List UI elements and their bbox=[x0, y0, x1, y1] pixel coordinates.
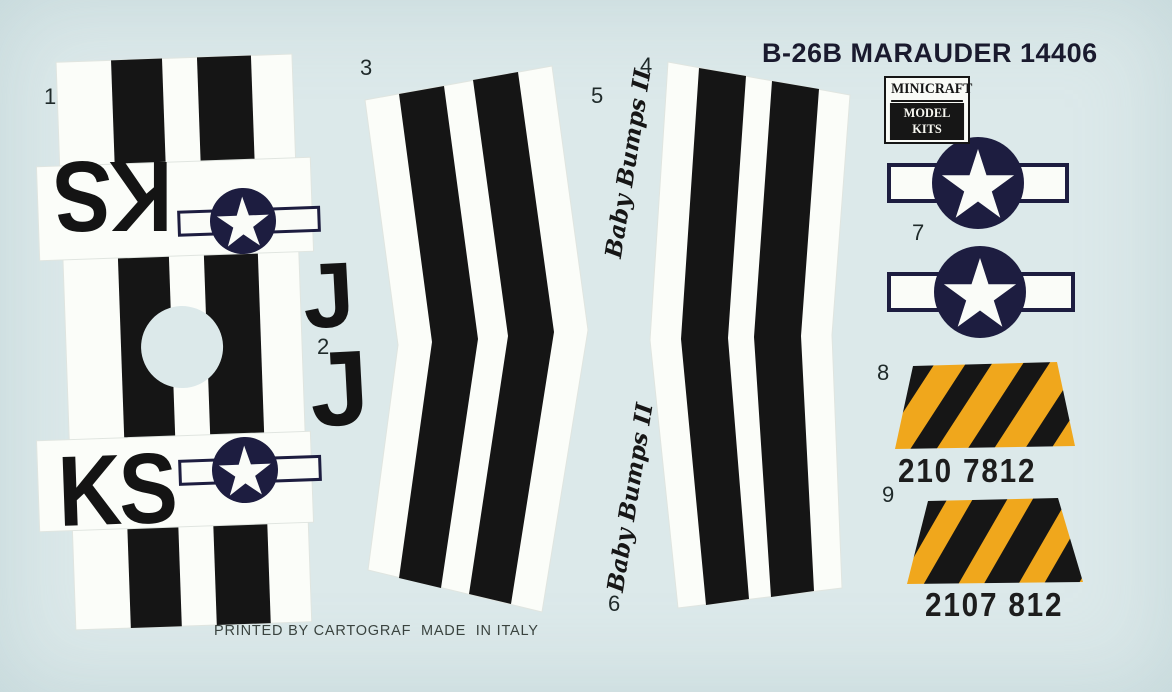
part-label-9: 9 bbox=[882, 484, 894, 506]
tail-code-inverted: KS bbox=[44, 166, 185, 246]
hazard-trapezoid-9 bbox=[907, 498, 1083, 584]
brand-logo: MINICRAFT MODEL KITS bbox=[884, 76, 970, 144]
printer-credit: PRINTED BY CARTOGRAF MADE IN ITALY bbox=[214, 624, 539, 639]
brand-name: MINICRAFT bbox=[891, 80, 963, 102]
part-label-7: 7 bbox=[912, 222, 924, 244]
part-label-8: 8 bbox=[877, 362, 889, 384]
part-label-1: 1 bbox=[44, 86, 56, 108]
brand-tagline: MODEL KITS bbox=[890, 103, 964, 140]
wing-stripes-panel-3 bbox=[365, 66, 588, 612]
sheet-title: B-26B MARAUDER 14406 bbox=[762, 40, 1098, 67]
wing-stripes-panel-4 bbox=[650, 62, 850, 608]
hazard-trapezoid-8 bbox=[895, 362, 1075, 449]
star-and-bar-insignia-large-bottom bbox=[889, 246, 1073, 338]
part-label-3: 3 bbox=[360, 57, 372, 79]
stripe-panel-white bbox=[650, 62, 850, 608]
tail-code: KS bbox=[44, 438, 188, 523]
serial-number-bottom: 2107 812 bbox=[925, 588, 1063, 621]
part-label-6: 6 bbox=[608, 593, 620, 615]
serial-number-top: 210 7812 bbox=[898, 454, 1036, 487]
squadron-letter-j-bottom: J bbox=[307, 335, 371, 444]
part-label-5: 5 bbox=[591, 85, 603, 107]
decal-sheet: B-26B MARAUDER 14406 MINICRAFT MODEL KIT… bbox=[0, 0, 1172, 692]
star-and-bar-insignia-large-top bbox=[889, 137, 1067, 229]
